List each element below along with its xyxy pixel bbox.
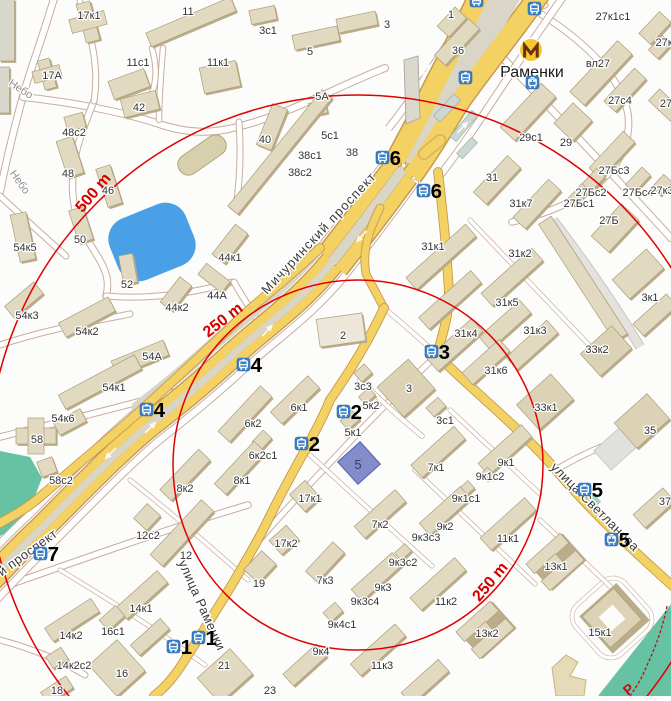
svg-text:44к1: 44к1 xyxy=(218,252,241,264)
svg-text:5к2: 5к2 xyxy=(362,400,379,412)
svg-text:11к3: 11к3 xyxy=(371,660,393,672)
svg-text:33к1: 33к1 xyxy=(534,402,557,414)
svg-text:5: 5 xyxy=(592,479,603,502)
svg-text:11к1: 11к1 xyxy=(497,533,519,545)
svg-text:31: 31 xyxy=(486,172,498,184)
svg-text:5А: 5А xyxy=(315,91,329,103)
svg-text:37: 37 xyxy=(659,496,671,508)
svg-text:9к3с4: 9к3с4 xyxy=(351,596,380,608)
svg-text:9к4: 9к4 xyxy=(312,646,329,658)
svg-text:35: 35 xyxy=(644,425,656,437)
svg-text:3с3: 3с3 xyxy=(354,381,372,393)
svg-text:54к6: 54к6 xyxy=(51,413,74,425)
svg-text:54к3: 54к3 xyxy=(15,310,38,322)
svg-text:27Бс1: 27Бс1 xyxy=(563,198,594,210)
svg-text:1: 1 xyxy=(206,627,217,650)
svg-text:3с1: 3с1 xyxy=(259,25,277,37)
svg-text:38с1: 38с1 xyxy=(298,150,322,162)
svg-text:3к1: 3к1 xyxy=(641,292,658,304)
svg-text:16с1: 16с1 xyxy=(101,626,125,638)
svg-text:38с2: 38с2 xyxy=(288,167,312,179)
svg-text:17А: 17А xyxy=(42,70,62,82)
svg-text:54А: 54А xyxy=(142,351,162,363)
svg-text:2: 2 xyxy=(340,330,346,342)
svg-text:27к3: 27к3 xyxy=(650,185,671,197)
svg-text:17к2: 17к2 xyxy=(274,538,297,550)
svg-text:16: 16 xyxy=(116,668,128,680)
svg-text:9к3с2: 9к3с2 xyxy=(389,557,418,569)
svg-text:3: 3 xyxy=(384,19,390,31)
svg-text:23: 23 xyxy=(264,685,276,696)
svg-text:46: 46 xyxy=(102,185,114,197)
svg-text:5: 5 xyxy=(619,529,630,552)
svg-text:4: 4 xyxy=(251,354,263,377)
svg-text:58с2: 58с2 xyxy=(49,475,73,487)
svg-text:6к2с1: 6к2с1 xyxy=(249,450,278,462)
svg-text:6: 6 xyxy=(431,180,442,203)
svg-text:50: 50 xyxy=(74,234,86,246)
svg-text:27Б: 27Б xyxy=(599,215,618,227)
svg-text:5к1: 5к1 xyxy=(344,427,361,439)
svg-text:11: 11 xyxy=(182,6,193,18)
svg-text:48: 48 xyxy=(62,168,74,180)
svg-text:27: 27 xyxy=(660,98,671,110)
svg-text:27Бс3: 27Бс3 xyxy=(598,165,629,177)
svg-text:38: 38 xyxy=(346,147,358,159)
svg-text:13к2: 13к2 xyxy=(475,628,498,640)
svg-text:8к2: 8к2 xyxy=(176,483,193,495)
svg-text:15к1: 15к1 xyxy=(588,627,611,639)
svg-text:7к3: 7к3 xyxy=(316,575,333,587)
svg-text:48с2: 48с2 xyxy=(62,127,86,139)
svg-text:27Бс4: 27Бс4 xyxy=(622,187,653,199)
svg-text:18: 18 xyxy=(51,685,63,696)
svg-text:1: 1 xyxy=(181,636,192,659)
svg-text:19: 19 xyxy=(253,578,265,590)
svg-text:9к1: 9к1 xyxy=(497,457,514,469)
svg-text:31к3: 31к3 xyxy=(523,325,546,337)
svg-text:6к2: 6к2 xyxy=(244,418,261,430)
svg-text:58: 58 xyxy=(31,434,43,446)
svg-text:7к2: 7к2 xyxy=(371,519,388,531)
svg-text:54к1: 54к1 xyxy=(102,382,125,394)
svg-text:31к2: 31к2 xyxy=(508,248,531,260)
svg-text:21: 21 xyxy=(218,660,230,672)
svg-text:8к1: 8к1 xyxy=(233,475,250,487)
svg-text:31к6: 31к6 xyxy=(484,365,507,377)
svg-text:31к1: 31к1 xyxy=(421,241,444,253)
svg-text:9к1с2: 9к1с2 xyxy=(476,471,505,483)
svg-text:6к1: 6к1 xyxy=(290,402,307,414)
svg-text:7: 7 xyxy=(48,543,59,566)
svg-text:11к1: 11к1 xyxy=(207,57,229,69)
svg-text:5: 5 xyxy=(307,46,313,58)
svg-text:40: 40 xyxy=(259,134,271,146)
svg-text:31к7: 31к7 xyxy=(509,198,532,210)
svg-text:27к: 27к xyxy=(655,37,671,49)
svg-text:44А: 44А xyxy=(207,290,227,302)
svg-text:31к5: 31к5 xyxy=(495,297,518,309)
svg-text:14к2: 14к2 xyxy=(59,630,82,642)
svg-text:12с2: 12с2 xyxy=(136,530,160,542)
svg-text:36: 36 xyxy=(452,45,464,57)
svg-text:9к4с1: 9к4с1 xyxy=(328,619,357,631)
svg-text:27с4: 27с4 xyxy=(608,95,632,107)
svg-text:12: 12 xyxy=(180,550,192,562)
svg-text:29с1: 29с1 xyxy=(519,132,543,144)
svg-text:52: 52 xyxy=(121,279,133,291)
svg-text:17к1: 17к1 xyxy=(77,10,100,22)
svg-text:9к3с3: 9к3с3 xyxy=(412,532,441,544)
svg-text:2: 2 xyxy=(309,433,320,456)
svg-text:17к1: 17к1 xyxy=(298,493,321,505)
svg-text:вл27: вл27 xyxy=(586,58,610,70)
svg-text:1: 1 xyxy=(448,9,454,21)
svg-text:33к2: 33к2 xyxy=(585,344,608,356)
svg-text:2: 2 xyxy=(351,401,362,424)
svg-text:6: 6 xyxy=(390,147,401,170)
svg-text:42: 42 xyxy=(133,102,145,114)
svg-text:5: 5 xyxy=(354,457,361,472)
svg-text:9к3: 9к3 xyxy=(374,582,391,594)
svg-text:5с1: 5с1 xyxy=(321,130,339,142)
svg-text:9к1с1: 9к1с1 xyxy=(452,493,481,505)
svg-text:13к1: 13к1 xyxy=(544,561,567,573)
svg-text:27к1с1: 27к1с1 xyxy=(596,11,631,23)
svg-text:44к2: 44к2 xyxy=(165,302,188,314)
svg-text:31к4: 31к4 xyxy=(454,328,477,340)
svg-text:14к2с2: 14к2с2 xyxy=(57,660,92,672)
svg-text:3: 3 xyxy=(439,341,450,364)
svg-text:4: 4 xyxy=(154,399,166,422)
svg-text:14к1: 14к1 xyxy=(129,603,152,615)
svg-text:11с1: 11с1 xyxy=(126,57,149,69)
svg-text:7к1: 7к1 xyxy=(427,462,444,474)
svg-text:3с1: 3с1 xyxy=(436,415,454,427)
svg-text:11к2: 11к2 xyxy=(435,596,457,608)
svg-text:54к5: 54к5 xyxy=(13,242,36,254)
svg-text:29: 29 xyxy=(560,137,572,149)
svg-text:3: 3 xyxy=(406,383,412,395)
svg-text:54к2: 54к2 xyxy=(75,326,98,338)
